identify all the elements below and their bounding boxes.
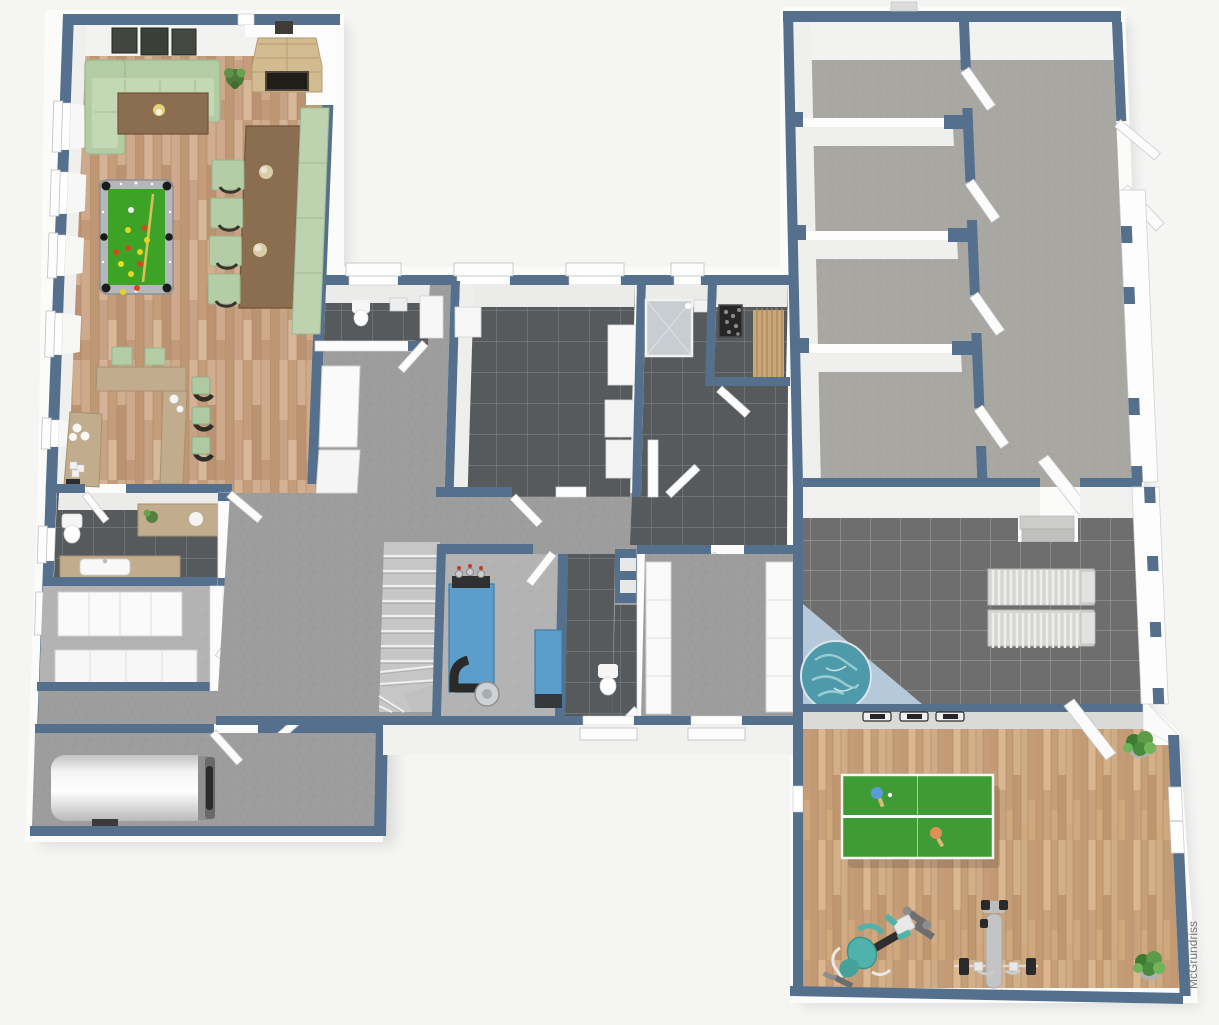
svg-text:McGrundriss: McGrundriss	[1186, 921, 1200, 989]
